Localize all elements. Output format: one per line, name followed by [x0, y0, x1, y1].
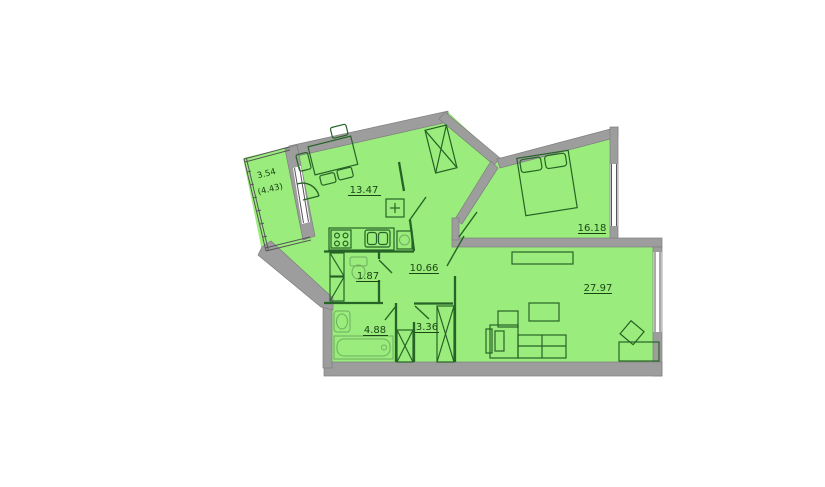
wall-bottom: [324, 362, 662, 376]
wc-area-label: 1.87: [357, 271, 379, 282]
hallway-area-label: 10.66: [410, 263, 439, 274]
bedroom-window: [611, 164, 618, 226]
kitchen-area-label: 13.47: [350, 185, 379, 196]
wall-bedroom-bottom: [452, 238, 662, 247]
living-area-label: 27.97: [584, 283, 613, 294]
living-window: [654, 252, 662, 332]
bedroom-area-label: 16.18: [578, 223, 607, 234]
floor-plan: 3.54 (4.43) 13.47 16.18 10.66 1.87 4.88 …: [0, 0, 825, 487]
floor-plan-page: 3.54 (4.43) 13.47 16.18 10.66 1.87 4.88 …: [0, 0, 825, 487]
bathroom-area-label: 4.88: [364, 325, 386, 336]
storage-area-label: 3.36: [416, 322, 438, 333]
wall-hall-bedroom-vert: [452, 218, 459, 240]
